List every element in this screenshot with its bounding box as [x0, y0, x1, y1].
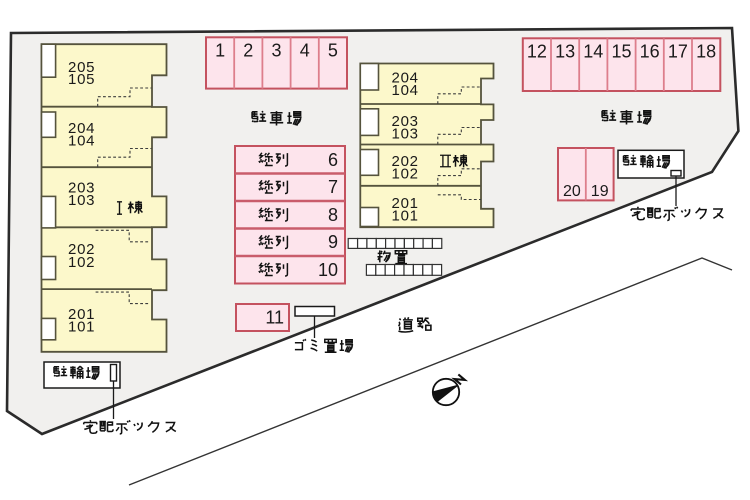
svg-text:9: 9 [328, 232, 338, 252]
svg-text:2: 2 [243, 41, 253, 61]
svg-text:17: 17 [668, 42, 688, 62]
svg-text:16: 16 [640, 42, 660, 62]
svg-text:20: 20 [563, 183, 581, 200]
svg-text:11: 11 [265, 308, 284, 328]
svg-text:14: 14 [583, 42, 603, 62]
svg-text:102: 102 [392, 165, 419, 182]
svg-text:101: 101 [392, 208, 419, 225]
svg-text:105: 105 [68, 71, 95, 88]
svg-text:4: 4 [300, 41, 310, 61]
svg-text:18: 18 [696, 42, 716, 62]
svg-text:13: 13 [555, 42, 575, 62]
svg-text:104: 104 [68, 132, 95, 149]
svg-text:104: 104 [392, 82, 419, 99]
svg-text:101: 101 [68, 319, 95, 336]
svg-text:10: 10 [318, 260, 338, 280]
svg-text:8: 8 [328, 205, 338, 225]
svg-text:3: 3 [271, 41, 281, 61]
svg-text:103: 103 [392, 125, 419, 142]
svg-text:102: 102 [68, 254, 95, 271]
svg-text:7: 7 [328, 177, 338, 197]
svg-text:12: 12 [527, 42, 547, 62]
svg-text:5: 5 [328, 41, 338, 61]
svg-text:1: 1 [215, 41, 225, 61]
svg-text:15: 15 [611, 42, 631, 62]
svg-text:103: 103 [68, 192, 95, 209]
svg-text:6: 6 [328, 150, 338, 170]
svg-text:19: 19 [591, 183, 609, 200]
